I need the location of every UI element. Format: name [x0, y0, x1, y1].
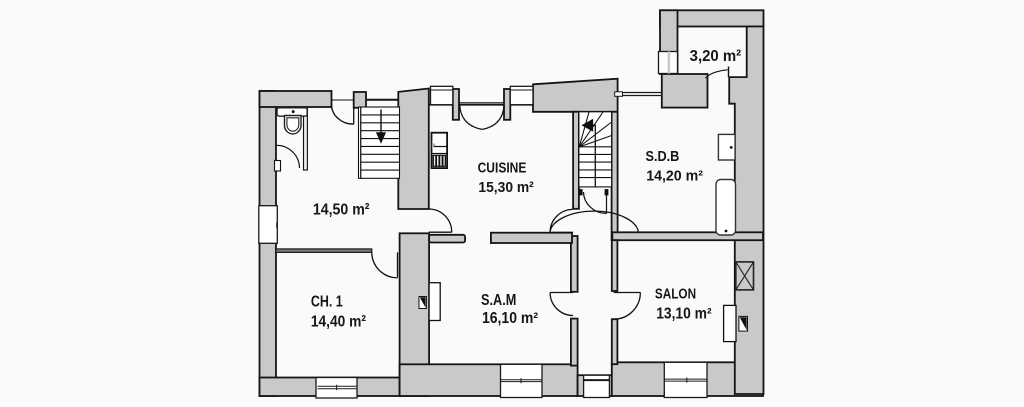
svg-text:14,20 m²: 14,20 m² — [646, 169, 703, 185]
svg-text:16,10 m²: 16,10 m² — [482, 310, 538, 327]
svg-text:3,20 m²: 3,20 m² — [690, 48, 742, 65]
svg-text:14,40 m²: 14,40 m² — [311, 314, 366, 331]
svg-text:CH. 1: CH. 1 — [311, 294, 343, 311]
svg-text:14,50 m²: 14,50 m² — [313, 202, 370, 219]
svg-text:S.A.M: S.A.M — [481, 292, 516, 309]
svg-text:S.D.B: S.D.B — [646, 149, 680, 165]
svg-text:13,10 m²: 13,10 m² — [656, 306, 711, 323]
svg-text:CUISINE: CUISINE — [478, 159, 527, 176]
svg-text:15,30 m²: 15,30 m² — [478, 179, 533, 196]
svg-text:SALON: SALON — [655, 287, 696, 303]
